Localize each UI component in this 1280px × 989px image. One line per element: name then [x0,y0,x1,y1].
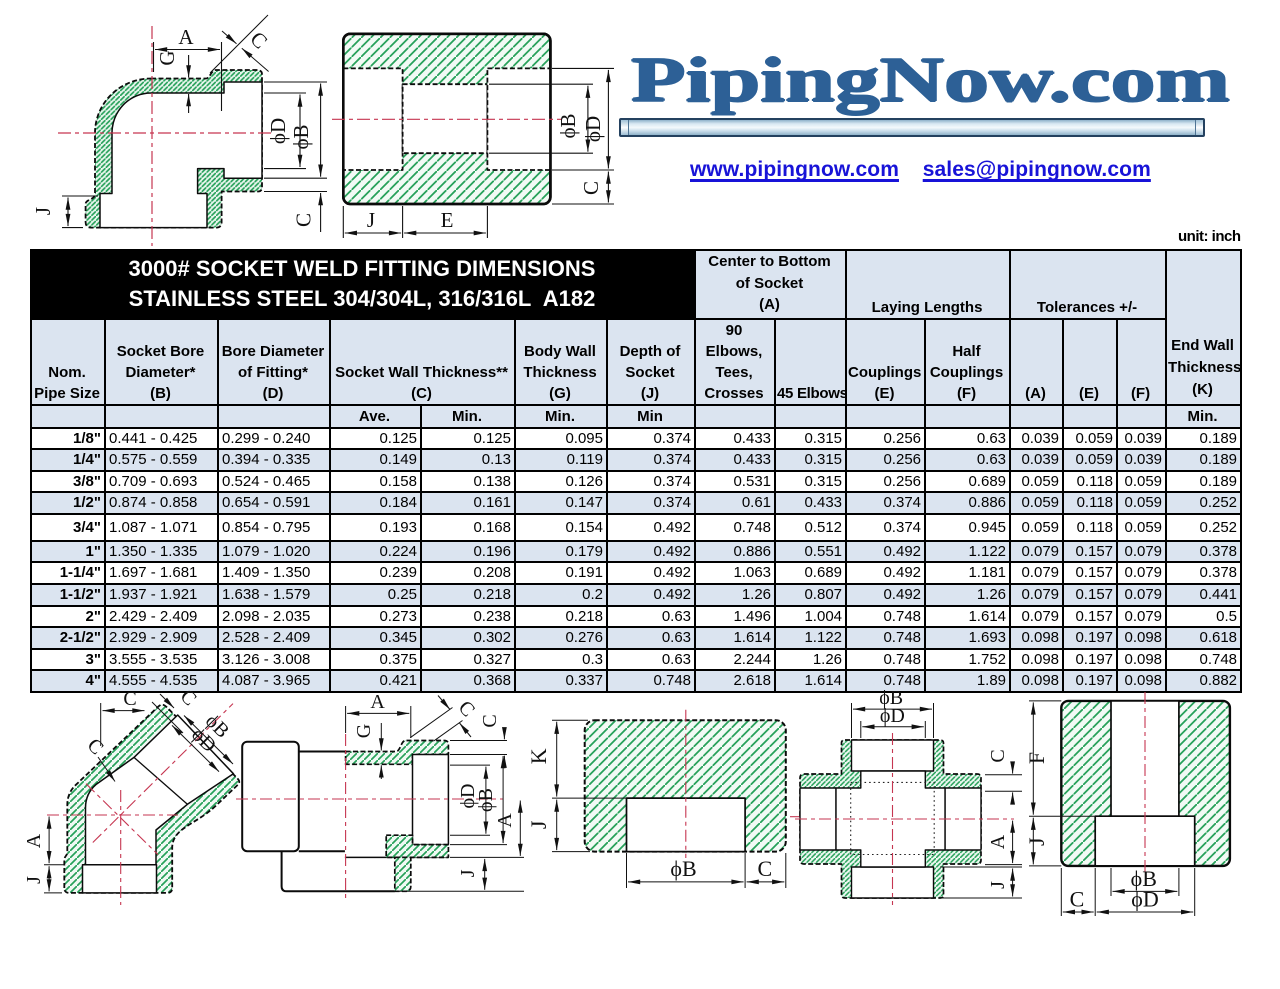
svg-text:A: A [178,25,194,49]
svg-text:C: C [479,714,501,727]
svg-text:C: C [292,213,316,227]
svg-text:J: J [367,208,375,232]
svg-text:C: C [1070,887,1085,912]
svg-text:C: C [987,749,1009,762]
svg-text:J: J [1024,837,1049,846]
svg-text:J: J [526,820,551,829]
svg-text:J: J [987,881,1009,889]
svg-text:J: J [23,876,45,884]
svg-text:C: C [246,27,273,54]
svg-text:C: C [176,690,201,710]
svg-text:G: G [155,50,179,65]
svg-text:F: F [1024,752,1049,764]
svg-text:C: C [83,734,108,759]
svg-text:ϕB: ϕB [475,788,497,812]
svg-text:C: C [758,856,773,881]
svg-text:K: K [526,748,551,764]
svg-text:A: A [494,813,516,828]
svg-text:ϕB: ϕB [670,856,696,881]
svg-text:ϕD: ϕD [1131,887,1158,912]
svg-text:C: C [454,697,479,722]
svg-text:C: C [579,181,603,195]
svg-text:ϕD: ϕD [880,705,905,727]
svg-text:J: J [457,869,479,877]
svg-text:A: A [370,691,385,713]
svg-text:A: A [987,834,1009,849]
svg-text:ϕB: ϕB [556,113,580,138]
svg-text:ϕB: ϕB [289,124,313,149]
svg-text:ϕD: ϕD [266,118,290,144]
svg-text:E: E [441,208,454,232]
svg-text:A: A [23,833,45,848]
svg-text:C: C [123,690,136,710]
svg-text:ϕD: ϕD [581,116,605,142]
svg-text:J: J [31,207,55,215]
svg-text:G: G [353,724,375,738]
